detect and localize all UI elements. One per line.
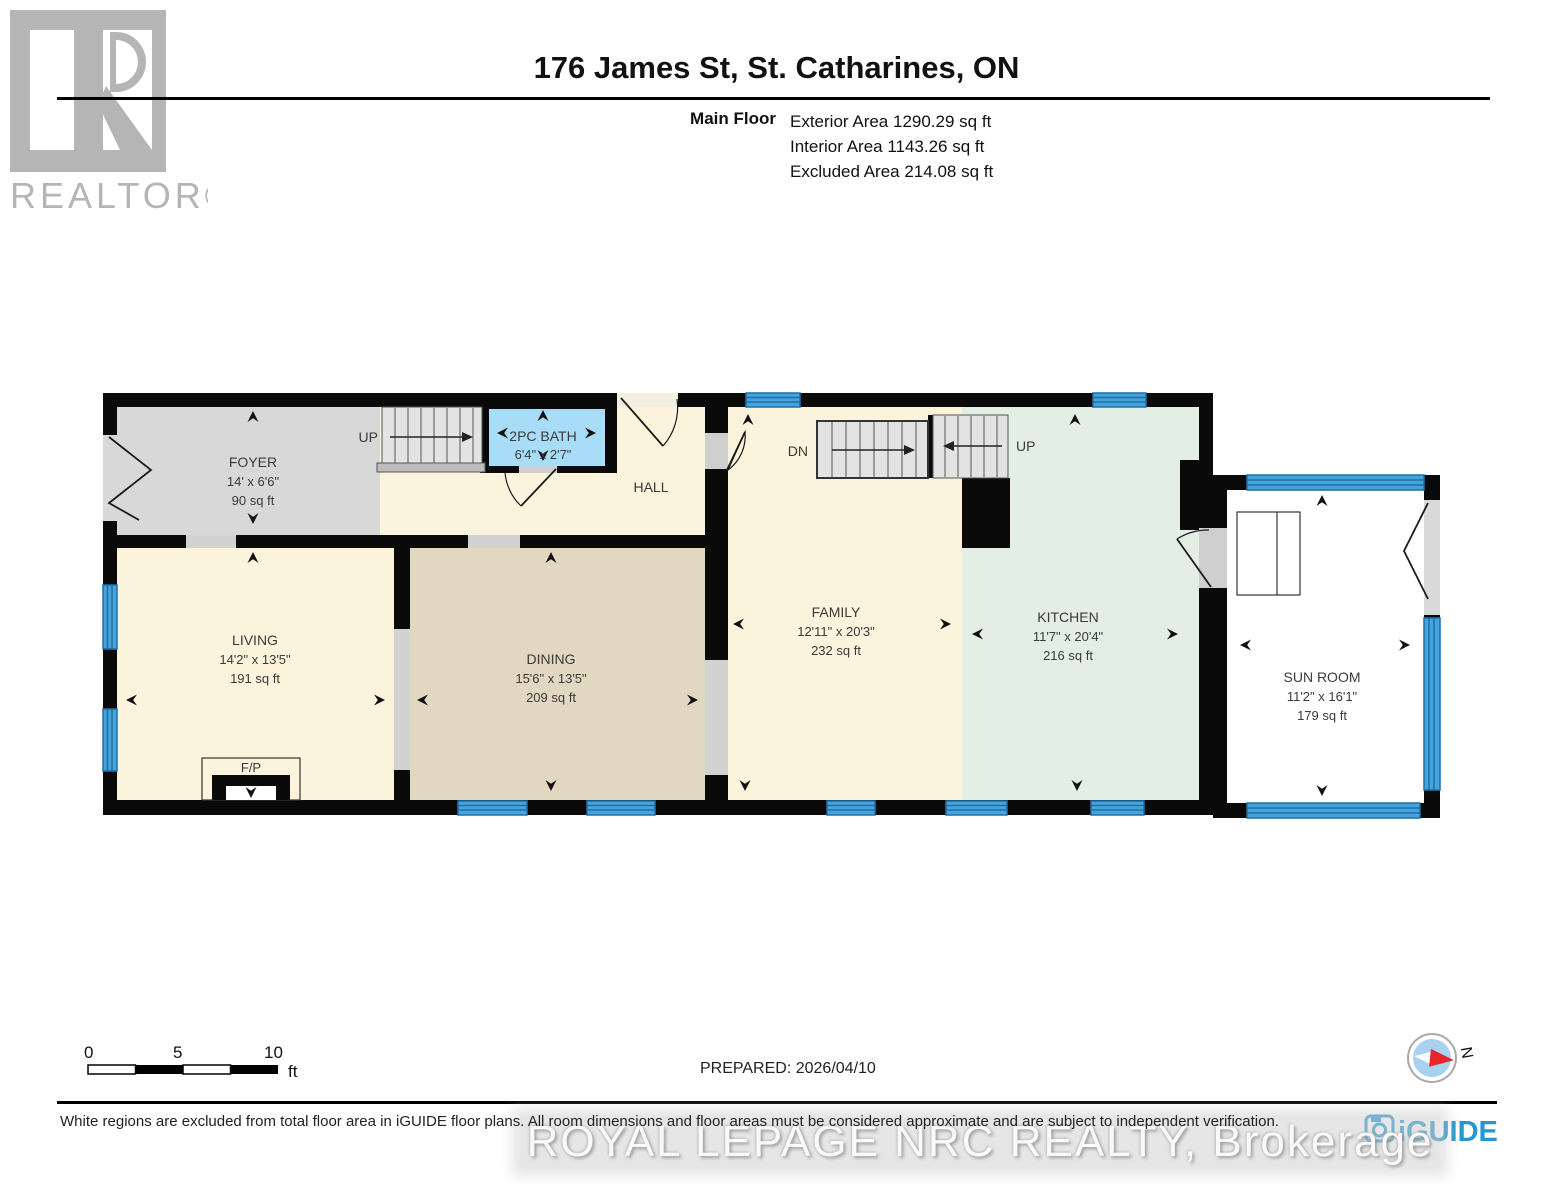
living-label: LIVING [232, 632, 278, 648]
family-label: FAMILY [812, 604, 861, 620]
scale-tick-5: 5 [173, 1043, 182, 1062]
dining-label: DINING [527, 651, 576, 667]
foyer-label: FOYER [229, 454, 277, 470]
scale-tick-0: 0 [84, 1043, 93, 1062]
foyer-dims: 14' x 6'6" [227, 474, 280, 489]
window [1093, 393, 1146, 407]
window [458, 801, 527, 815]
disclaimer-text: White regions are excluded from total fl… [60, 1113, 1440, 1130]
window [587, 801, 655, 815]
dining-dims: 15'6" x 13'5" [515, 671, 587, 686]
family-dims: 12'11" x 20'3" [797, 624, 875, 639]
window [1247, 475, 1424, 490]
sunroom-counter [1237, 512, 1300, 595]
window [1091, 801, 1144, 815]
room-fills [117, 407, 1424, 803]
hall-label: HALL [633, 479, 668, 495]
footer-divider [57, 1101, 1497, 1104]
sunroom-dims: 11'2" x 16'1" [1287, 689, 1358, 704]
window [1424, 618, 1440, 790]
living-dims: 14'2" x 13'5" [219, 652, 291, 667]
stairs-dn-label: DN [788, 443, 808, 459]
foyer-floor [117, 407, 380, 535]
stairs-up2-label: UP [1016, 438, 1035, 454]
fireplace-label: F/P [241, 760, 261, 775]
sunroom-label: SUN ROOM [1284, 669, 1361, 685]
stairs-down-family [817, 421, 928, 478]
compass-n-label: N [1457, 1046, 1476, 1060]
window [946, 801, 1007, 815]
kitchen-area: 216 sq ft [1043, 648, 1093, 663]
dining-area: 209 sq ft [526, 690, 576, 705]
kitchen-dims: 11'7" x 20'4" [1033, 629, 1104, 644]
scale-bar: 0 5 10 ft [80, 1040, 320, 1090]
front-door-opening [103, 435, 117, 521]
window [746, 393, 800, 407]
floor-plan-page: REALTOR® 176 James St, St. Catharines, O… [0, 0, 1553, 1200]
compass: N [1402, 1028, 1482, 1088]
prepared-date: PREPARED: 2026/04/10 [700, 1060, 876, 1078]
window [1247, 803, 1420, 818]
scale-unit: ft [288, 1062, 298, 1081]
window [827, 801, 875, 815]
floor-plan-drawing: FOYER 14' x 6'6" 90 sq ft 2PC BATH 6'4" … [0, 0, 1553, 1200]
stairs-up-label: UP [359, 429, 378, 445]
stairs-up-kitchen [933, 415, 1008, 478]
stairs-up-foyer [377, 407, 485, 472]
sunroom-area: 179 sq ft [1297, 708, 1347, 723]
scale-tick-10: 10 [264, 1043, 283, 1062]
bath-dims: 6'4" x 2'7" [515, 447, 572, 462]
window [103, 585, 117, 649]
kitchen-label: KITCHEN [1037, 609, 1098, 625]
bath-label: 2PC BATH [509, 428, 576, 444]
foyer-area: 90 sq ft [232, 493, 275, 508]
window [103, 709, 117, 771]
family-area: 232 sq ft [811, 643, 861, 658]
living-area: 191 sq ft [230, 671, 280, 686]
